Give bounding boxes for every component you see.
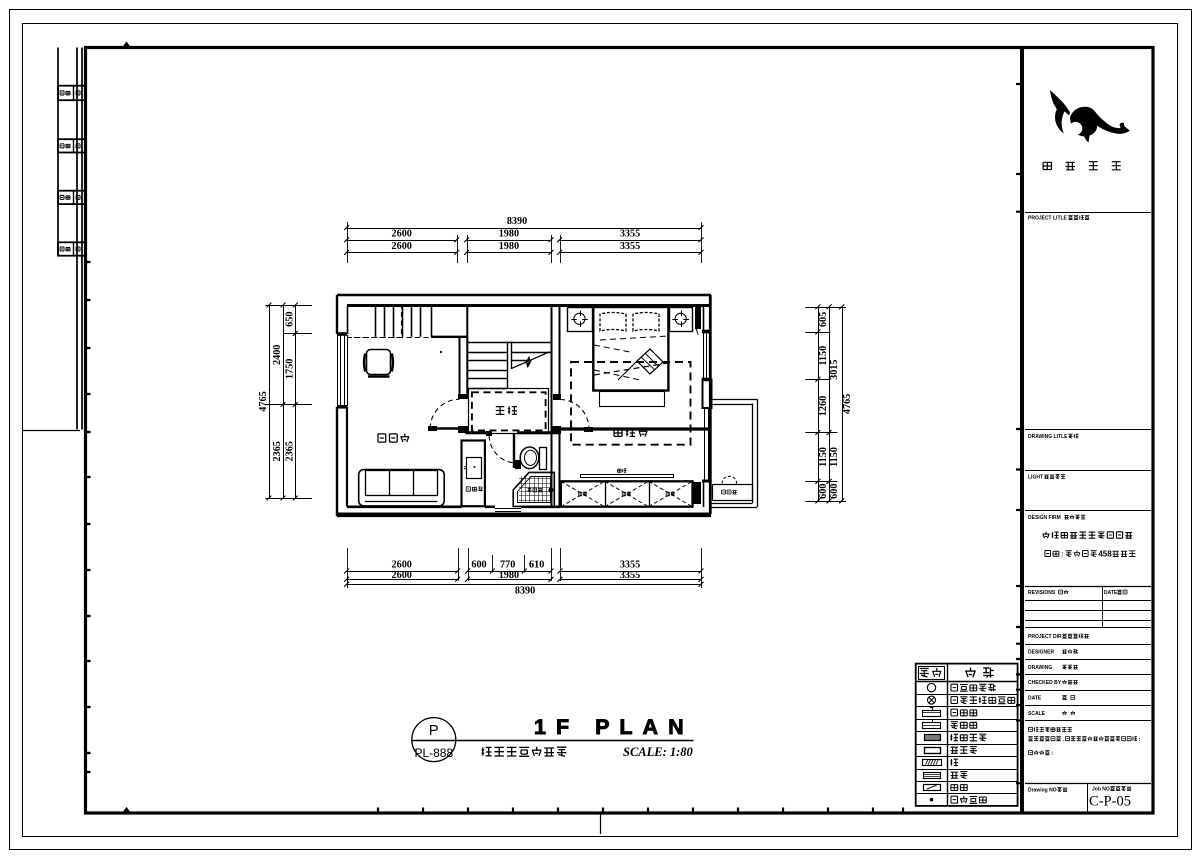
svg-text:605: 605 [818,312,829,327]
svg-text:DESIGNER: DESIGNER [1028,650,1055,656]
svg-text:2365: 2365 [284,441,295,461]
svg-text:REVISIONS: REVISIONS [1028,590,1056,596]
svg-text:600: 600 [818,484,829,499]
svg-text:3015: 3015 [829,360,840,380]
svg-text:DRAWING: DRAWING [1028,665,1052,671]
svg-text:1980: 1980 [499,229,519,240]
svg-text:458: 458 [1098,550,1112,559]
svg-text:1150: 1150 [818,346,829,366]
svg-text:600: 600 [471,560,486,571]
svg-text:4765: 4765 [842,394,853,414]
svg-text:LIGHT: LIGHT [1028,475,1043,481]
svg-text:1150: 1150 [818,447,829,467]
svg-text:3355: 3355 [620,229,640,240]
svg-text:650: 650 [284,312,295,327]
svg-text:3355: 3355 [620,241,640,252]
svg-text:2400: 2400 [272,345,283,365]
svg-text:DESIGN FIRM: DESIGN FIRM [1028,515,1061,521]
svg-text:2600: 2600 [392,229,412,240]
svg-text:C-P-05: C-P-05 [1089,794,1131,810]
svg-text:1150: 1150 [829,447,840,467]
svg-text:8390: 8390 [515,586,535,597]
svg-text:3355: 3355 [620,560,640,571]
svg-text:1F PLAN: 1F PLAN [534,715,694,739]
svg-text:1980: 1980 [499,241,519,252]
svg-text:SCALE: SCALE [1028,711,1046,717]
svg-text:1980: 1980 [499,570,519,581]
svg-text:SCALE: 1:80: SCALE: 1:80 [623,745,694,759]
svg-text:CHECKED BY: CHECKED BY [1028,680,1062,686]
svg-text:770: 770 [500,560,515,571]
svg-text:PROJECT LITLE: PROJECT LITLE [1028,216,1068,222]
svg-text:600: 600 [829,484,840,499]
svg-text:2600: 2600 [392,560,412,571]
svg-text:2600: 2600 [392,241,412,252]
svg-text:PROJECT DIR: PROJECT DIR [1028,634,1062,640]
svg-text:Job NO: Job NO [1092,787,1110,793]
svg-text:1260: 1260 [818,396,829,416]
svg-text:DRAWING LITLE: DRAWING LITLE [1028,434,1068,440]
svg-text:4765: 4765 [258,391,269,411]
svg-text:1750: 1750 [284,359,295,379]
svg-text:PL-888: PL-888 [414,746,453,760]
svg-text:610: 610 [529,560,544,571]
svg-text:Drawing NO: Drawing NO [1028,788,1057,794]
svg-text:2365: 2365 [272,441,283,461]
svg-text:DATE: DATE [1104,590,1118,596]
svg-text:3355: 3355 [620,570,640,581]
svg-text:8390: 8390 [507,216,527,227]
svg-text:DATE: DATE [1028,696,1042,702]
svg-text:2600: 2600 [392,570,412,581]
svg-text:P: P [429,722,439,739]
